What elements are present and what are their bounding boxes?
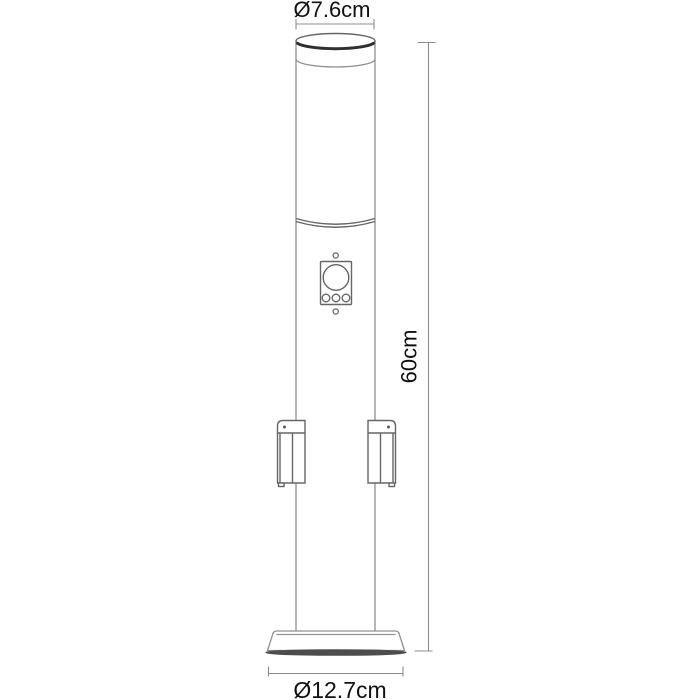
height-label: 60cm	[397, 330, 422, 384]
socket-cover-right	[368, 421, 396, 487]
bollard-lamp-line-drawing: Ø7.6cm 60cm Ø12.7cm	[0, 0, 700, 700]
base-diameter-label: Ø12.7cm	[293, 677, 386, 700]
top-diameter-label: Ø7.6cm	[293, 0, 370, 22]
collar-upper-arc	[296, 219, 375, 225]
socket-cover-right-outline	[368, 421, 396, 484]
height-dimension: 60cm	[397, 43, 436, 652]
socket-cover-left-screw	[283, 426, 286, 429]
socket-cover-left-outline	[278, 421, 306, 484]
top-cap-bottom-arc	[296, 59, 375, 67]
lamp-body	[266, 34, 406, 656]
base-diameter-dimension: Ø12.7cm	[269, 667, 404, 700]
socket-cover-right-screw	[387, 426, 390, 429]
diffuser-collar	[296, 219, 375, 228]
sensor-screw-bottom	[333, 309, 338, 314]
socket-cover-right-foot	[389, 483, 395, 487]
top-cap	[296, 34, 375, 68]
product-dimension-diagram: Ø7.6cm 60cm Ø12.7cm	[0, 0, 700, 700]
socket-cover-left	[278, 421, 306, 487]
socket-cover-left-foot	[279, 483, 285, 487]
base-plinth	[266, 631, 406, 655]
base-bottom-rim	[266, 650, 406, 655]
sensor-screw-top	[333, 253, 338, 258]
motion-sensor-panel	[321, 253, 352, 314]
top-diameter-dimension: Ø7.6cm	[293, 0, 374, 30]
